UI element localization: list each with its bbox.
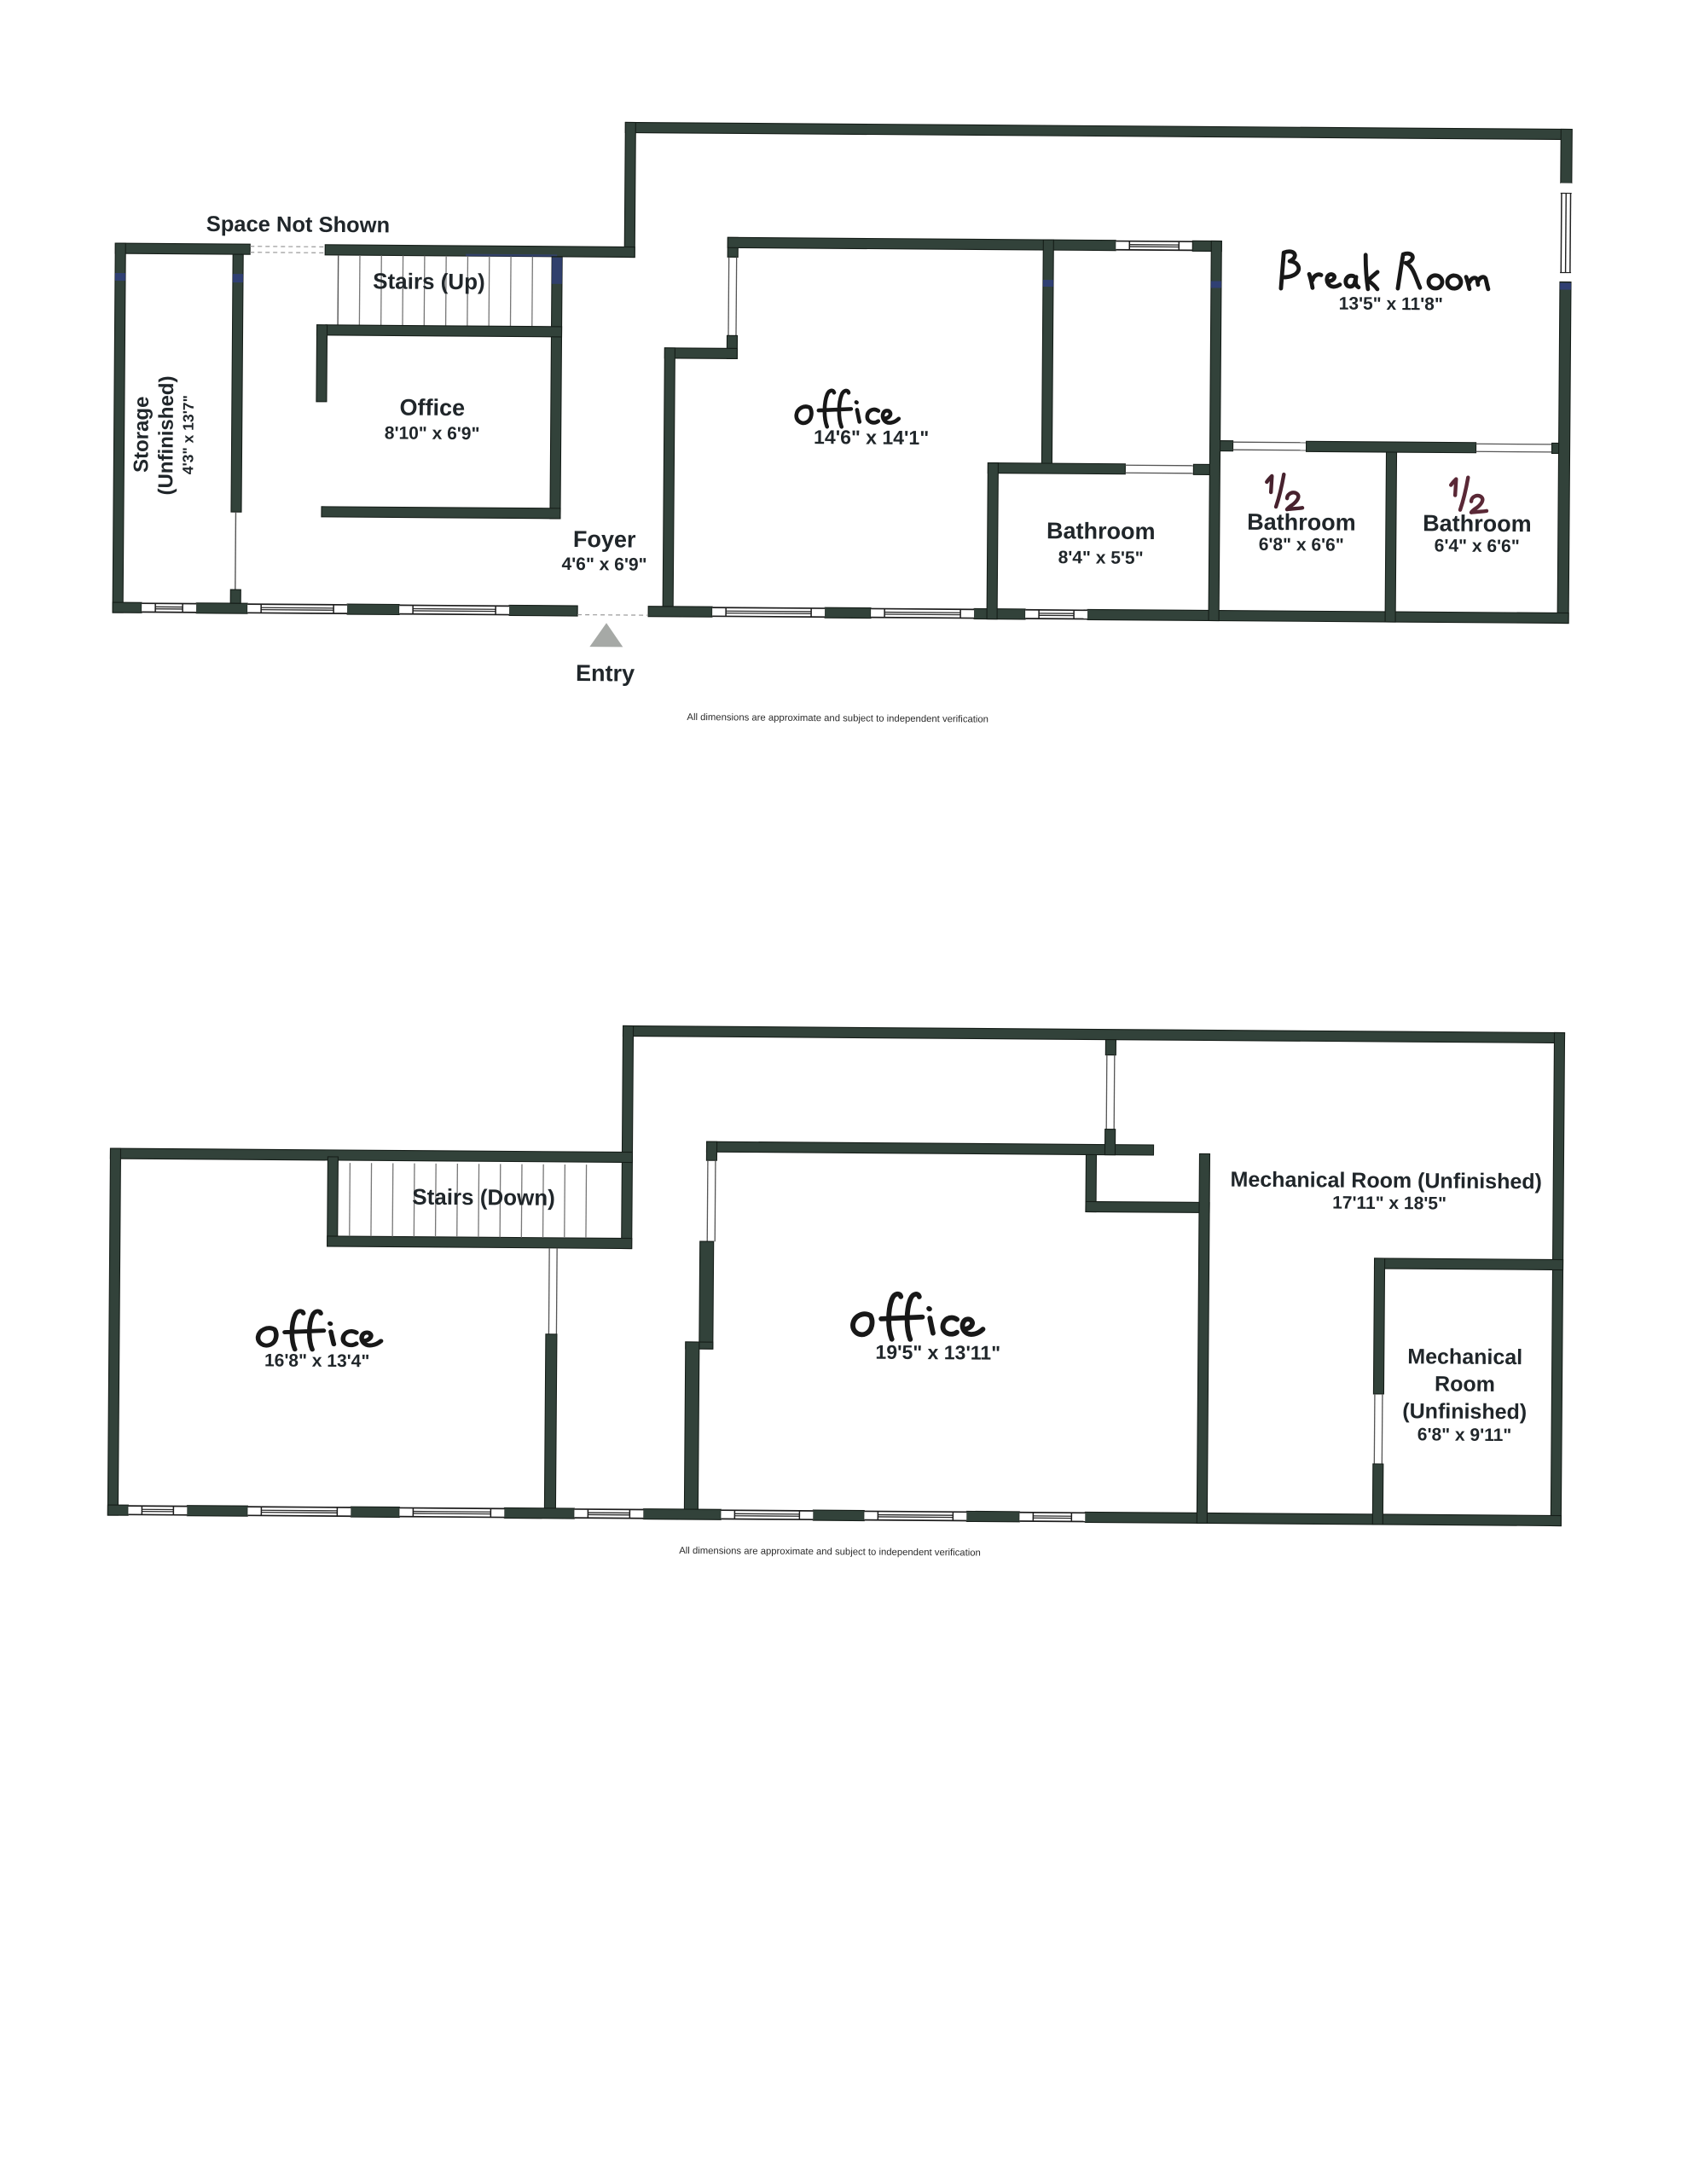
svg-text:Bathroom: Bathroom [1247, 509, 1356, 536]
svg-text:Stairs (Down): Stairs (Down) [412, 1184, 555, 1211]
svg-text:(Unfinished): (Unfinished) [154, 375, 178, 495]
svg-text:Office: Office [399, 395, 465, 421]
svg-text:Entry: Entry [576, 660, 635, 687]
svg-text:Mechanical Room (Unfinished): Mechanical Room (Unfinished) [1231, 1168, 1543, 1194]
svg-text:4'6" x 6'9": 4'6" x 6'9" [561, 555, 646, 575]
svg-text:Room: Room [1435, 1372, 1495, 1397]
svg-text:4'3" x 13'7": 4'3" x 13'7" [179, 395, 197, 474]
svg-text:Bathroom: Bathroom [1423, 510, 1532, 537]
svg-text:Space Not Shown: Space Not Shown [206, 212, 391, 238]
svg-text:6'4" x 6'6": 6'4" x 6'6" [1435, 536, 1520, 556]
svg-text:6'8" x 9'11": 6'8" x 9'11" [1417, 1425, 1512, 1445]
svg-text:16'8" x 13'4": 16'8" x 13'4" [264, 1350, 369, 1371]
svg-text:8'10" x 6'9": 8'10" x 6'9" [385, 423, 480, 444]
svg-text:(Unfinished): (Unfinished) [1402, 1399, 1527, 1424]
svg-text:6'8" x 6'6": 6'8" x 6'6" [1259, 535, 1344, 555]
svg-text:8'4" x 5'5": 8'4" x 5'5" [1058, 548, 1144, 568]
svg-text:14'6" x 14'1": 14'6" x 14'1" [814, 426, 929, 449]
svg-text:Bathroom: Bathroom [1046, 518, 1156, 544]
svg-text:Mechanical: Mechanical [1407, 1345, 1522, 1369]
svg-text:Storage: Storage [130, 397, 154, 473]
svg-text:Stairs (Up): Stairs (Up) [373, 268, 485, 294]
svg-text:13'5" x 11'8": 13'5" x 11'8" [1339, 294, 1443, 315]
svg-text:17'11" x 18'5": 17'11" x 18'5" [1332, 1194, 1446, 1214]
svg-text:Foyer: Foyer [573, 526, 636, 553]
svg-text:19'5" x 13'11": 19'5" x 13'11" [875, 1341, 1000, 1364]
